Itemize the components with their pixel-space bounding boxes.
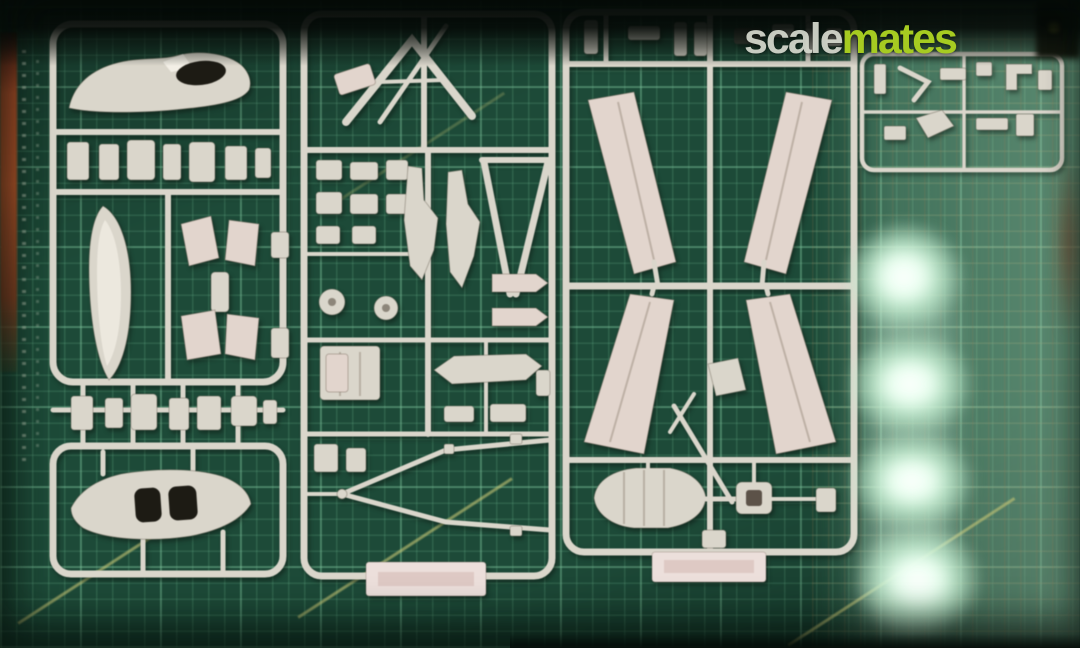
glare-reflection	[843, 220, 965, 334]
watermark-mates-text: mates	[842, 15, 956, 63]
sprue-right-frame	[566, 12, 854, 552]
sprue-small	[858, 46, 1070, 180]
photo-scene: scalemates	[0, 0, 1080, 648]
canopy-blade-part	[89, 206, 131, 380]
background-object-blur	[1054, 150, 1080, 340]
sprue-label-text	[664, 560, 754, 573]
table-edge	[0, 32, 17, 372]
small-parts-grid	[316, 160, 408, 244]
glare-reflection	[852, 522, 984, 638]
small-parts-row	[67, 140, 271, 182]
watermark-scale-text: scale	[744, 15, 842, 63]
mat-edge-markings	[22, 50, 26, 470]
sprue-right	[558, 2, 868, 602]
bottom-shadow	[510, 634, 1080, 648]
glare-reflection	[848, 430, 976, 532]
wing-part-lower-right	[746, 294, 836, 454]
wing-part-upper-right	[744, 92, 832, 274]
probe-vee-part	[304, 434, 550, 536]
mat-edge-markings	[36, 60, 39, 450]
scalemates-watermark: scalemates	[744, 18, 956, 61]
intake-parts	[181, 216, 289, 360]
landing-gear-leg-parts	[404, 166, 480, 288]
sprue-label-text	[378, 572, 474, 586]
wing-part-upper-left	[588, 92, 676, 274]
wheel-parts	[319, 289, 398, 320]
sprue-middle	[296, 4, 564, 604]
fuselage-half-bottom-part	[71, 450, 251, 572]
cockpit-tub-part	[320, 346, 380, 400]
wing-part-lower-left	[584, 294, 674, 454]
sprue-left	[43, 10, 293, 585]
glare-reflection	[845, 330, 975, 438]
